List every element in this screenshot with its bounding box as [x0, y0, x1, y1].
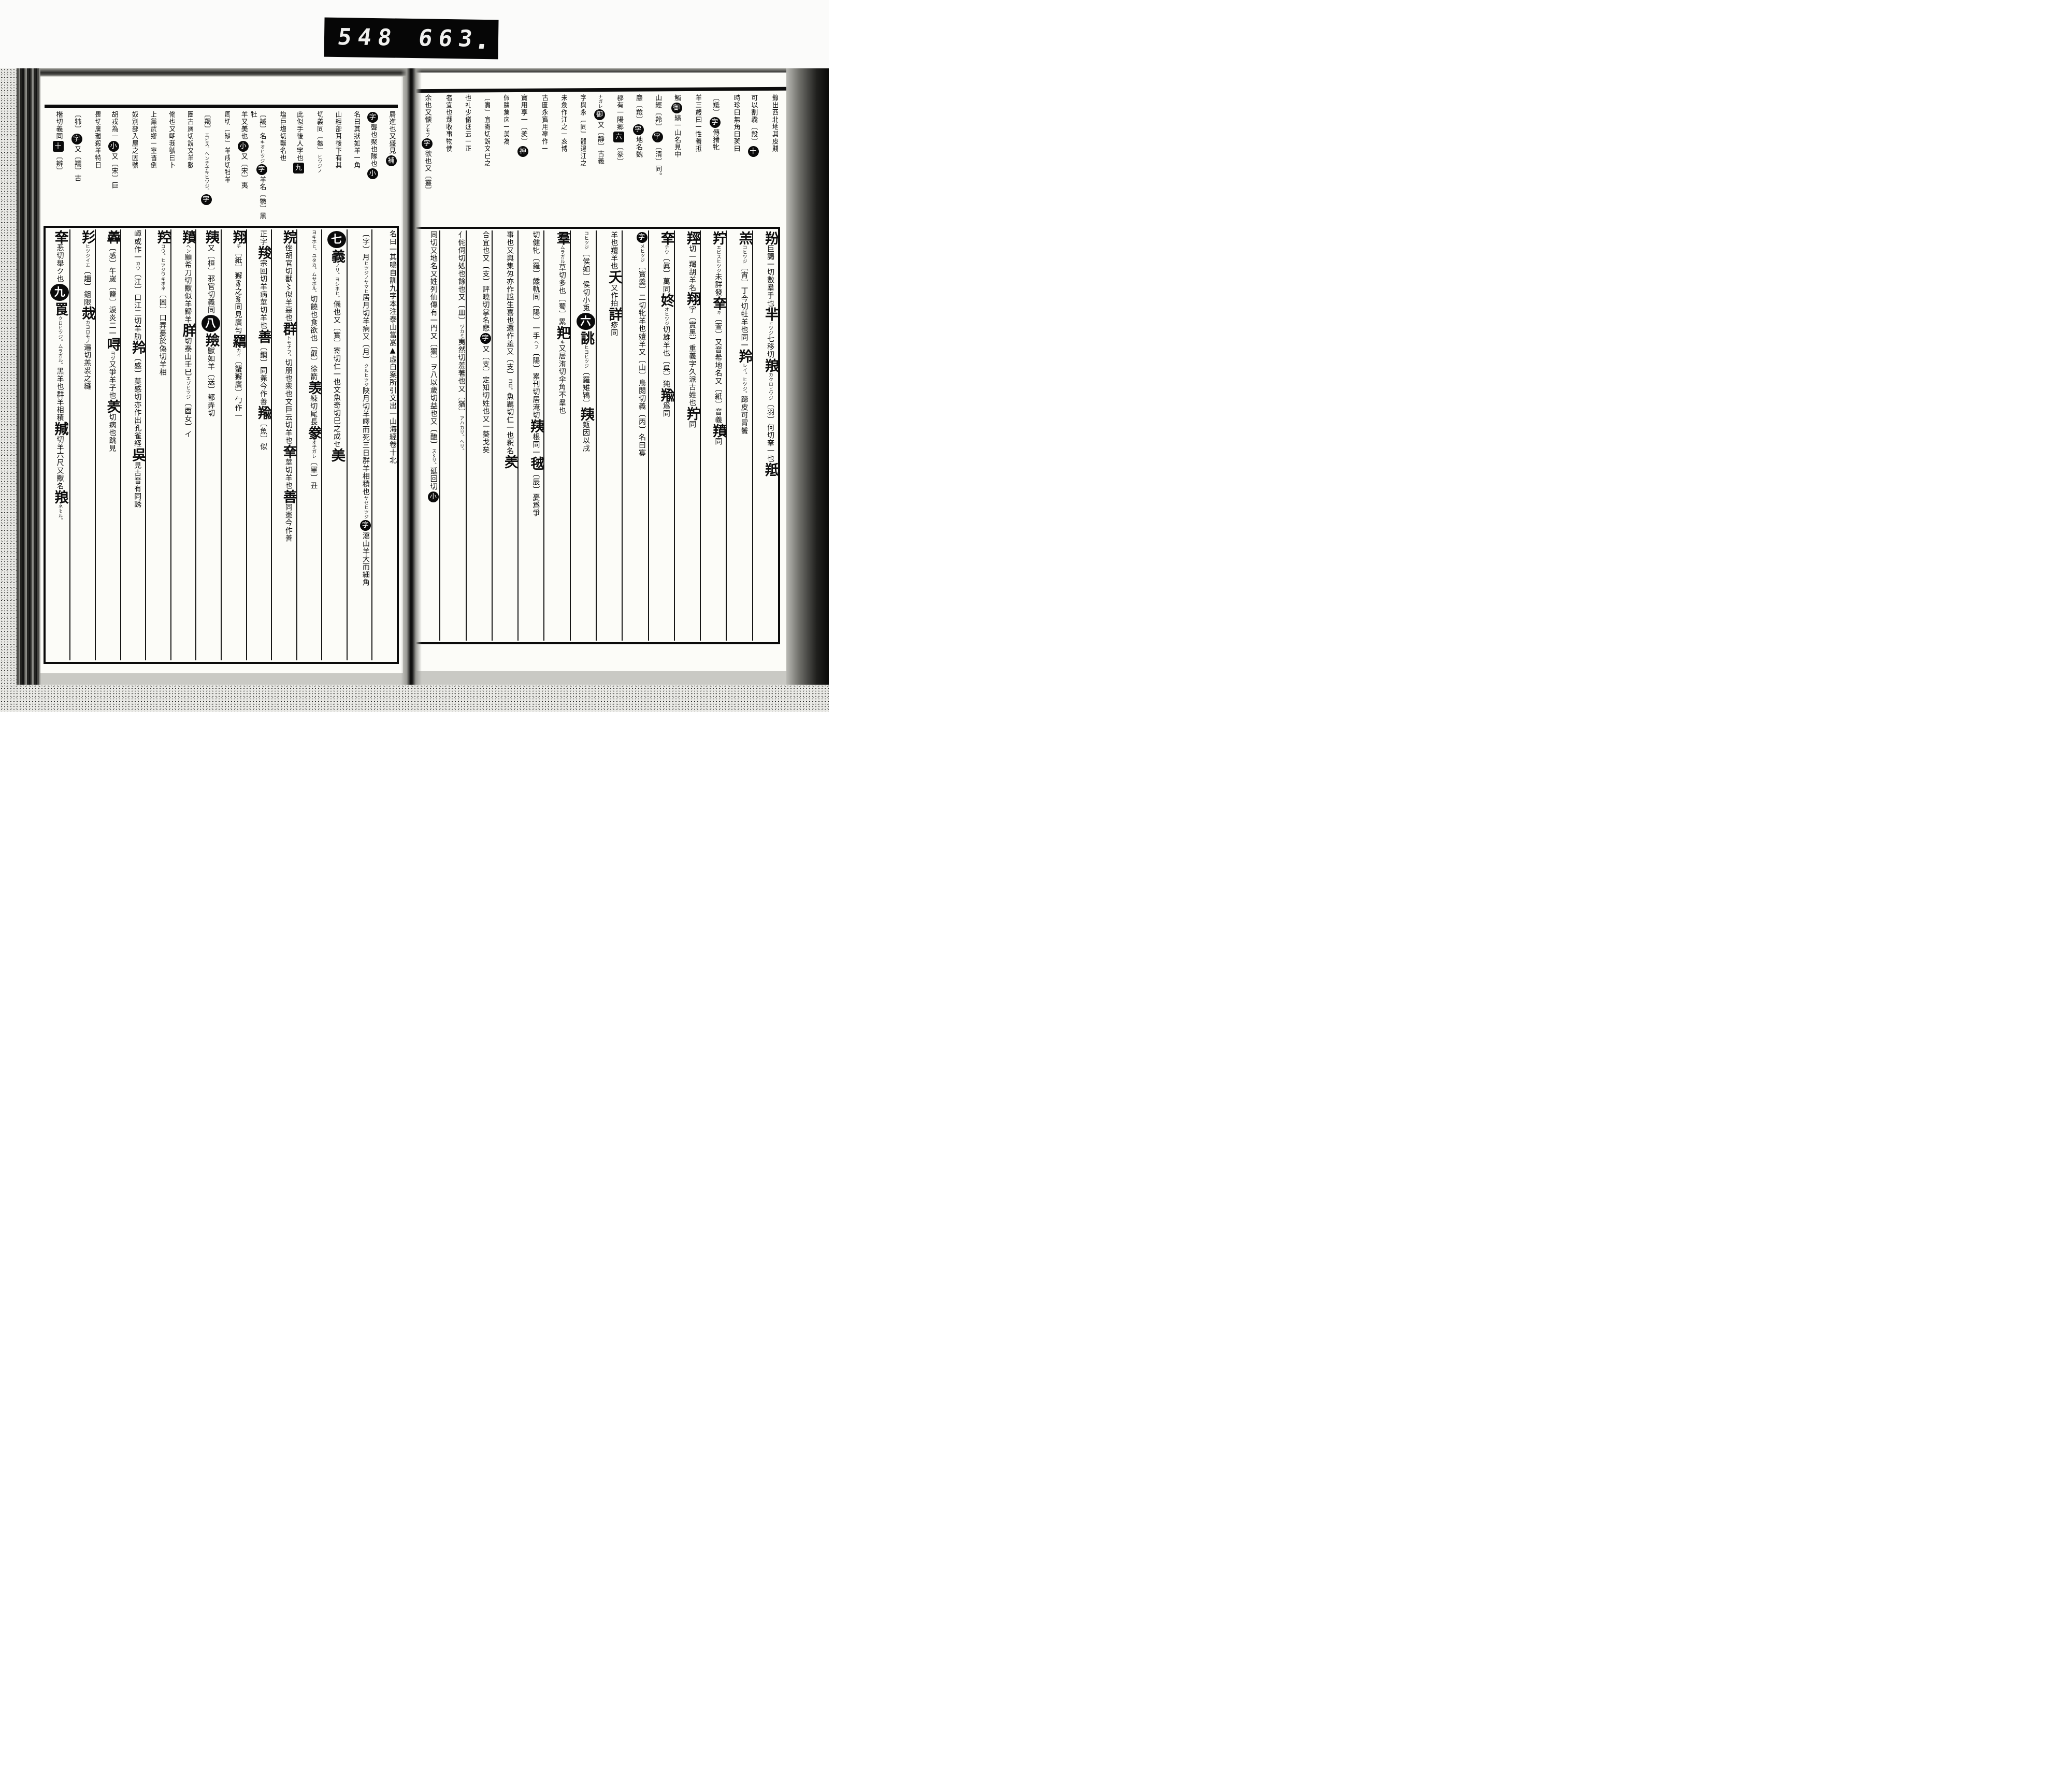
headword-char: 羴 [105, 230, 120, 244]
headword-char: 羡 [306, 381, 321, 395]
kana-reading: チ [236, 244, 241, 249]
section-marker-circle: 字 [480, 333, 491, 344]
gloss-text: 〔蟹獬廣〕勹作一 [234, 357, 242, 420]
section-marker-circle: 小 [108, 141, 119, 152]
gloss-text: 名曰其狀如羊一角 [353, 111, 360, 169]
section-marker-circle: 字 [256, 164, 267, 175]
gloss-text: 文魚奇切巳之成セ [333, 386, 341, 448]
section-marker-circle: 御 [594, 109, 605, 120]
right-page-top-rule [413, 87, 788, 93]
headword-char: 羓 [554, 326, 570, 340]
gloss-text: 羊三歳曰一性善抵 [694, 94, 701, 152]
gloss-text: 宗回切羊病莖切羊也 [259, 259, 267, 329]
gloss-text: 切義同〔皴〕 [315, 111, 323, 154]
section-marker-circle: 神 [517, 146, 528, 157]
gloss-text: 切羊六尺又獸名 [55, 436, 64, 490]
text-column: 〔羝〕字傳猾牝 [702, 94, 721, 223]
text-column: 也礼少儀迬云一正 [453, 94, 471, 223]
gloss-text: 練切尾長 [309, 395, 318, 426]
text-column: 羫コウ。ヒツジワキボネ〔困〕口弄憂於偽切羊相 [145, 229, 170, 660]
right-page-top-block: 錄出西北地其皮賤可以割毳〔羖〕十時珍曰無角曰羐曰〔羝〕字傳猾牝羊三歳曰一性善抵觸… [414, 94, 778, 223]
section-marker-circle: 補 [386, 155, 397, 166]
gloss-text: 同 [714, 438, 722, 445]
kana-reading: ナガレ [597, 94, 602, 108]
text-column: 羦侳胡官切獸〻似羊惡也群トモナフ。切朋也衆也文巨云切羊也羍莖切羊也善同憲今作善 [271, 229, 296, 660]
text-column: 〔羬〕名キオヒツジ字羊名〔犜〕黑牡 [249, 111, 267, 222]
gloss-text: 又爭羊子也 [108, 360, 117, 399]
text-column: 羵ヘン願希刀切獸似羊歸羊羘切泰山壬巳エゾヒツジ〔酉女〕イ [170, 229, 196, 660]
headword-char: 毧 [528, 456, 543, 470]
text-column: 圏古屑切說文羊數 [175, 111, 193, 222]
text-column: 羠又〔桓〕邪官切義同八羷獣如羊〔送〕都弄切 [195, 229, 221, 660]
headword-char: 羭 [658, 388, 674, 402]
text-column: 畏切廣雅殺羊特日 [82, 111, 100, 222]
film-bottom-noise-band [0, 685, 829, 712]
gloss-text: 〔辨〕 [55, 153, 63, 175]
headword-char: 羦 [281, 230, 296, 244]
text-column: 羊也羶羊也夭又作拍詳疹同 [596, 230, 622, 641]
gloss-text: 又〔羺〕古 [73, 146, 81, 182]
stroke-count-marker: 九 [50, 284, 69, 301]
kana-reading: キ [715, 310, 721, 315]
headword-char: 羑 [502, 455, 517, 469]
headword-char: 翔 [684, 292, 700, 306]
headword-char: 群 [281, 322, 296, 336]
kana-reading: エビスヒツジ [715, 245, 721, 273]
text-column: 〔羯〕エビス。ヘンチ子キヒツジ。字 [194, 111, 212, 222]
kana-reading: レイ。ヒツジ。 [742, 363, 747, 396]
text-column: 翔チ〔紙〕獬豸之豸同見廣匀羂カイ〔蟹獬廣〕勹作一 [221, 229, 246, 660]
text-column: 羔コヒツジ〔宵〕丁今切牡羊也同一羚レイ。ヒツジ。蹄皮可冐鬢 [726, 230, 752, 641]
gloss-text: 〔侯如〕侯切小兎 [582, 250, 590, 312]
kana-reading: メヒツジ [639, 244, 644, 263]
kana-reading: オヒツジ [664, 307, 669, 326]
gloss-text: 爲同 [662, 402, 670, 417]
kana-reading: カウ [135, 261, 140, 270]
left-page-main-block: 名曰一其鳴自訓九字本注泰山當嵓▲虛白案所引文出一山海經卷十北〔字〕月ヒツジノヤマ… [44, 226, 399, 664]
open-book: 屑進也又盛見補字聾也聚也隊也小名曰其狀如羊一角山經部耳後下有其切義同〔皴〕ヒツジ… [16, 68, 829, 686]
section-marker-square: 六 [613, 132, 624, 142]
headword-char: 羜 [710, 231, 726, 245]
gloss-text: 願希刀切獸似羊歸羊 [183, 253, 192, 323]
kana-reading: カクロヒツジ [768, 372, 773, 400]
text-column: 羊三歳曰一性善抵 [683, 94, 701, 223]
kana-reading: ヨロ。 [507, 379, 512, 393]
gloss-text: 羊又美也 [240, 111, 248, 140]
headword-char: 羍 [710, 296, 726, 310]
gloss-text: 縞一山名見中 [673, 114, 681, 158]
kana-reading: エゾヒツジ [185, 376, 190, 399]
gloss-text: 地名魏 [635, 136, 642, 158]
section-marker-circle: 字 [360, 520, 371, 531]
gloss-text: 切泰山壬巳 [183, 337, 192, 376]
headword-char: 羍 [658, 231, 674, 245]
text-column: 〔實〕宜寄切說文已之 [472, 94, 490, 223]
headword-char: 羍 [52, 230, 68, 244]
gloss-text: 〔羝〕 [711, 94, 719, 116]
gloss-text: 畏切廣雅殺羊特日 [93, 111, 100, 169]
gloss-text: 未詳發 [714, 273, 722, 296]
text-column: 未矦作江之一亥博 [549, 94, 567, 223]
text-column: 羜エビスヒツジ未詳發羍キ〔萱〕又音希地名又〔紙〕音義羵同 [700, 230, 726, 641]
text-column: 胡戎為一小又〔宋〕巨 [101, 111, 119, 222]
section-marker-circle: 字 [367, 112, 378, 123]
text-column: 名曰一其鳴自訓九字本注泰山當嵓▲虛白案所引文出一山海經卷十北 [371, 229, 397, 660]
text-column: 切健牝〔羅〕餧軌同〔陽〕一手ヘフ〔陽〕累刊切居淹切羠根同一毧〔辰〕憂爲爭 [517, 230, 543, 641]
text-column: 嶂或作一カウ〔江〕口江二切羊肋羚〔感〕莫感切亦作出孔雀経吳見古音有同誘 [120, 229, 146, 660]
headword-char: 羍 [281, 444, 296, 458]
gloss-text: 屑進也又盛見 [387, 111, 395, 154]
text-column: 奴別部入屋之因號 [120, 111, 138, 222]
gloss-text: 周切〔缺〕羊戌切牡羊 [223, 111, 230, 183]
gloss-text: 塩巨塩切獸名也 [279, 111, 286, 162]
gloss-text: 〔羬〕名 [258, 111, 266, 140]
section-marker-circle: 字 [633, 124, 644, 135]
gloss-text: 又居洧切伞角不羣也 [558, 344, 566, 414]
kana-reading: コヒツジ [583, 231, 588, 250]
gloss-text: 根同一 [531, 433, 540, 456]
text-column: 亻侂伺切処也餘也又〔皿〕ヅカミ夷然切羞著也又〔猶〕アハカリ。ヘリ。 [439, 230, 465, 641]
book-right-edge [786, 68, 829, 686]
kana-reading: コウ。ヒツジワキボネ [160, 244, 165, 291]
text-column: 上黨武鄉一室晋倒 [138, 111, 156, 222]
text-column: 切義同〔皴〕ヒツジノ [305, 111, 323, 222]
text-column: 字與永〔同〕體違江之 [568, 94, 586, 223]
gloss-text: 可以割毳〔羖〕 [750, 94, 757, 145]
counter-right-digits: 663 [417, 27, 486, 51]
gloss-text: 遍切羔裘之縫 [83, 343, 91, 390]
kana-reading: クロヒツジ。ムラガル。 [57, 316, 62, 367]
gloss-text: 〔寳羮〕二切牝羊也㜐羊又〔山〕烏閦切義〔丙〕名曰寡 [638, 263, 646, 457]
text-column: 羏ヒツジイエ〔趰〕鉏限烖カヨロモノ遍切羔裘之縫 [69, 229, 95, 660]
text-column: 脩也又朙我號曰卜 [156, 111, 175, 222]
kana-reading: アハカリ。ヘリ。 [459, 416, 464, 453]
headword-char: 翔 [231, 230, 246, 244]
kana-reading: ノリ。ヨシホヒ。 [334, 263, 339, 300]
gloss-text: 麢〔羷〕 [635, 94, 642, 123]
headword-char: 羠 [203, 230, 219, 244]
gloss-text: 正字 [259, 230, 267, 245]
kana-reading: アモフ [425, 123, 430, 137]
headword-char: 羥 [684, 231, 700, 245]
section-marker-circle: 字 [652, 132, 663, 142]
headword-char: 羔 [737, 231, 752, 245]
gloss-text: 〔㸬〕 [73, 111, 81, 133]
gloss-text: 疹同 [610, 321, 618, 337]
gloss-text: 郡有一陽郷 [615, 94, 623, 131]
text-column: 羴〔感〕午嵗〔盬〕淚炎二一㖊ヨヅ又爭羊子也羑切病也跳見 [95, 229, 120, 660]
gloss-text: 居月切羊病又〔月〕 [362, 294, 370, 364]
gloss-text: 奴別部入屋之因號 [131, 111, 138, 169]
text-column: 羣ムラガル草切多也〔蜀〕累羓キ又居洧切伞角不羣也 [543, 230, 569, 641]
kana-reading: テウ [664, 245, 669, 254]
gloss-text: 羊也羶羊也 [610, 231, 618, 270]
counter-decimal-dot [479, 44, 484, 49]
gloss-text: 嶂或作一 [133, 230, 141, 261]
kana-reading: ヒツジノ [316, 154, 322, 173]
frame-counter-display: 548 663 [324, 18, 498, 60]
gloss-text: 合宜也又〔支〕評曉切掌名悲 [481, 231, 490, 332]
gloss-text: 事也又與集匁亦作諡生喜也還作羞又〔支〕 [506, 231, 514, 379]
section-marker-circle: 御 [671, 103, 682, 113]
gloss-text: 錄出西北地其皮賤 [771, 94, 778, 152]
gloss-text: 胡戎為一 [110, 111, 118, 140]
section-marker-circle: 字 [201, 194, 212, 205]
headword-char: 羠 [528, 419, 543, 433]
gloss-text: 山經部耳後下有其 [334, 111, 341, 169]
gloss-text: 脩也又朙我號曰卜 [167, 111, 175, 169]
gloss-text: 〔眞〕萬同 [662, 254, 670, 293]
text-column: 羍テウ〔眞〕萬同㚵オヒツジ切雄羊也〔吳〕㹠羭爲同 [648, 230, 674, 641]
headword-char: 羷 [203, 333, 219, 347]
kana-reading: ヒツジノヤマヒ [363, 261, 368, 294]
gloss-text: 〔辰〕憂爲爭 [531, 470, 540, 517]
headword-char: 烖 [79, 306, 95, 320]
book-gutter [401, 68, 422, 686]
gloss-text: 者宜也㦲收事物使 [444, 94, 452, 152]
gloss-text: 山經〔羚〕 [654, 94, 661, 131]
gloss-text: 字與永〔同〕體違江之 [579, 94, 586, 167]
gloss-text: 圏古屑切說文羊數 [186, 111, 193, 169]
gloss-text: 切一羯胡羊名 [688, 245, 696, 292]
gloss-text: 切雄羊也〔吳〕㹠 [662, 326, 670, 388]
text-column: 郡有一陽郷六〔豢〕 [606, 94, 624, 223]
headword-char: 美 [329, 448, 345, 462]
gloss-text: 〔感〕莫感切亦作出孔雀経 [133, 354, 141, 447]
headword-char: 吳 [129, 447, 145, 461]
headword-char: 羪 [52, 490, 68, 504]
headword-char: 㖊 [105, 337, 120, 351]
text-column: 塩巨塩切獸名也 [268, 111, 286, 222]
text-column: 周切〔缺〕羊戌切牡羊 [212, 111, 230, 222]
kana-reading: ヘン [185, 244, 190, 253]
section-marker-circle: 字 [422, 138, 433, 149]
gloss-text: 魚羈切仁一也釈名 [506, 393, 514, 455]
headword-char: 䍚 [52, 302, 68, 316]
gloss-text: 聾也聚也隊也 [369, 124, 377, 167]
gloss-text: 又〔宋〕夷 [240, 153, 248, 189]
gloss-text: 忢切舉ク也 [55, 244, 64, 283]
stroke-count-marker: 八 [202, 315, 220, 332]
section-marker-circle: 小 [238, 141, 249, 152]
headword-char: 羑 [105, 399, 120, 413]
gloss-text: 又〔靜〕古義 [596, 121, 604, 165]
headword-char: 夭 [606, 270, 622, 284]
text-column: 時珍曰無角曰羐曰 [722, 94, 740, 223]
gloss-text: 〔趰〕鉏限 [83, 267, 91, 306]
kana-reading: ヒツジ [768, 321, 773, 335]
gloss-text: 〔羽〕何切羍一也 [766, 400, 774, 462]
headword-char: 羪 [762, 358, 778, 372]
headword-char: 羣 [554, 231, 570, 245]
headword-char: 羵 [180, 230, 195, 244]
headword-char: 善 [255, 329, 271, 343]
gloss-text: 古圖永寳用亭作一 [540, 94, 548, 152]
text-column: 楷切義同十〔辨〕 [46, 111, 64, 222]
text-column: 錄出西北地其皮賤 [760, 94, 778, 223]
right-page: 錄出西北地其皮賤可以割毳〔羖〕十時珍曰無角曰羐曰〔羝〕字傳猾牝羊三歳曰一性善抵觸… [409, 73, 793, 671]
text-column: 麢〔羷〕字地名魏 [626, 94, 644, 223]
gloss-text: 未矦作江之一亥博 [559, 94, 567, 152]
section-marker-circle: 十 [748, 146, 759, 157]
left-page-top-block: 屑進也又盛見補字聾也聚也隊也小名曰其狀如羊一角山經部耳後下有其切義同〔皴〕ヒツジ… [46, 111, 397, 222]
headword-char: 羫 [155, 230, 170, 244]
gloss-text: 黑羊也群羊相積 [55, 367, 64, 422]
text-column: ヨキホヒ。ユタカ。ムサボル。切饒也食欲也〔叡〕徐箭羡練切尾長豢オ子ガレ〔𦋐〕丑 [296, 229, 322, 660]
kana-reading: コヒツジ [742, 245, 747, 264]
gloss-text: 觸 [673, 94, 681, 102]
headword-char: 羵 [710, 424, 726, 438]
gloss-text: 同切又地名又姓列仙傳有一門又〔獮〕ヲ八以歲切益也又〔醢〕 [429, 231, 438, 449]
headword-char: 羬 [52, 422, 68, 436]
gloss-text: 見古音有同誘 [133, 461, 141, 508]
gloss-text: 〔感〕午嵗〔盬〕淚炎二一 [108, 244, 117, 337]
gloss-text: 〔酉女〕イ [183, 399, 192, 438]
gloss-text: 〔江〕口江二切羊肋 [133, 270, 141, 340]
gloss-text: 佩膓集㐫一美為 [502, 94, 509, 145]
kana-reading: キ [559, 340, 565, 344]
text-column: 〔㸬〕字又〔羺〕古 [64, 111, 82, 222]
headword-char: 詳 [606, 307, 622, 321]
gloss-text: 亻侂伺切処也餘也又〔皿〕 [457, 231, 466, 324]
gloss-text: 又作拍 [610, 284, 618, 307]
left-page: 屑進也又盛見補字聾也聚也隊也小名曰其狀如羊一角山經部耳後下有其切義同〔皴〕ヒツジ… [39, 77, 403, 673]
kana-reading: オ子ガレ [311, 440, 316, 458]
gloss-text: 莖切羊也 [284, 458, 293, 489]
stroke-count-marker: 七 [327, 231, 346, 248]
gloss-text: 〔羅雉鴇〕 [582, 368, 590, 407]
gloss-text: 名曰一其鳴自訓九字本注泰山當嵓 [388, 230, 397, 346]
headword-char: 羋 [762, 307, 778, 321]
headword-char: 羝 [762, 462, 778, 476]
gloss-text: 同 [688, 421, 696, 428]
text-column: 佩膓集㐫一美為 [491, 94, 509, 223]
headword-char: 羜 [684, 407, 700, 421]
headword-char: 誂 [578, 331, 594, 345]
gloss-text: 欲也又〔霻〕 [424, 150, 431, 194]
headword-char: 羠 [578, 407, 594, 421]
kana-reading: クルヒツジ [363, 364, 368, 387]
headword-char: 羒 [762, 231, 778, 245]
kana-reading: ヨヅ [110, 351, 115, 360]
kana-reading: ネ〻ル。 [57, 504, 62, 523]
book-left-edge [16, 68, 40, 686]
text-column: 事也又與集匁亦作諡生喜也還作羞又〔支〕ヨロ。魚羈切仁一也釈名羑 [492, 230, 517, 641]
section-marker-square: 九 [293, 163, 304, 173]
kana-reading: ヅカミ [459, 324, 464, 338]
kana-reading: ヘフ [533, 340, 538, 349]
microfilm-scan: 548 663 屑進也又盛見補字聾也聚也隊也小名曰其狀如羊一角山經部耳後下有其切… [0, 0, 829, 712]
kana-reading: カイ [236, 348, 241, 357]
section-marker-circle: 小 [428, 491, 439, 502]
headword-char: 㚵 [658, 293, 674, 307]
gloss-text: 儀也又〔實〕寄切仁一也 [333, 300, 341, 386]
gloss-text: 巨謁一切數羣手也 [766, 245, 774, 307]
gloss-text: 〔𦋐〕丑 [309, 458, 318, 489]
text-column: 可以割毳〔羖〕十 [741, 94, 759, 223]
gloss-text: 草切多也〔蜀〕累 [558, 264, 566, 326]
kana-reading: ヒツジイエ [84, 244, 90, 267]
gloss-text: 字〔實黑〕重義字久派古姓也 [688, 306, 696, 407]
gloss-text: 切健牝〔羅〕餧軌同〔陽〕一手 [531, 231, 540, 340]
kana-reading: ヨキホヒ。ユタカ。ムサボル。 [311, 230, 316, 295]
text-column: 字聾也聚也隊也小 [360, 111, 378, 222]
gloss-text: 寶用享一〔羑〕 [520, 94, 527, 145]
text-column: 觸御縞一山名見中 [664, 94, 682, 223]
kana-reading: トモナフ。 [286, 336, 291, 359]
gloss-text: 傳猾牝 [711, 129, 719, 151]
film-left-noise-band [0, 68, 17, 686]
gloss-text: 同憲今作善 [284, 503, 293, 542]
headword-char: 羂 [231, 334, 246, 348]
gloss-text: 七移切 [766, 335, 774, 358]
kana-reading: ヒヨヒツジ [583, 345, 588, 368]
section-marker-circle: 字 [637, 232, 647, 243]
gloss-text: 陜月切羊曎而死三日群羊相積也 [362, 387, 370, 496]
gloss-text: 〔紙〕獬豸之豸同見廣匀 [234, 249, 242, 334]
gloss-text: 〔萱〕又音希地名又〔紙〕音義 [714, 315, 722, 424]
kana-reading: ムラガル [559, 245, 565, 264]
kana-reading: ヤセヒツジ [363, 496, 368, 519]
gloss-text: 侳胡官切獸〻似羊惡也 [284, 244, 293, 322]
gloss-text: 〔實〕宜寄切說文已之 [483, 94, 490, 167]
text-column: 此似手後人字也九 [286, 111, 304, 222]
headword-char: 善 [281, 489, 296, 503]
left-page-top-rule [45, 105, 398, 108]
gloss-text: 瀉山羊大而細角 [362, 532, 370, 586]
headword-char: 羏 [79, 230, 95, 244]
section-marker-square: 十 [53, 141, 64, 152]
gloss-text: 切朋也衆也文巨云切羊也 [284, 359, 293, 444]
text-column: 羊又美也小又〔宋〕夷 [231, 111, 249, 222]
gloss-text: 〔陽〕累刊切居淹切 [531, 349, 540, 419]
text-column: 名曰其狀如羊一角 [342, 111, 360, 222]
text-column: 字メヒツジ〔寳羮〕二切牝羊也㜐羊又〔山〕烏閦切義〔丙〕名曰寡 [622, 230, 647, 641]
text-column: 正字羧宗回切羊病莖切羊也善〔鋼〕同羛今作善羭〔魚〕似 [246, 229, 271, 660]
kana-reading: ス〻リ。 [431, 449, 436, 467]
text-column: 山經部耳後下有其 [323, 111, 341, 222]
text-column: ナガレ御又〔靜〕古義 [587, 94, 605, 223]
text-column: コヒツジ〔侯如〕侯切小兎六誂ヒヨヒツジ〔羅雉鴇〕羠㼽因以戌 [570, 230, 596, 641]
text-column: 羒巨謁一切數羣手也羋ヒツジ七移切羪カクロヒツジ〔羽〕何切羍一也羝 [752, 230, 778, 641]
kana-reading: カヨロモノ [84, 320, 90, 343]
headword-char: 羭 [255, 406, 271, 420]
headword-char: 羧 [255, 245, 271, 259]
section-marker-circle: 字 [710, 117, 721, 128]
gloss-text: 切饒也食欲也〔叡〕徐箭 [309, 295, 318, 381]
kana-reading: キオヒツジ [259, 140, 264, 163]
headword-char: 義 [329, 249, 345, 263]
headword-char: 羚 [737, 349, 752, 363]
headword-char: 羚 [129, 340, 145, 354]
gloss-text: 又〔宋〕巨 [110, 153, 118, 189]
gloss-text: 時珍曰無角曰羐曰 [732, 94, 740, 152]
gloss-text: 㼽因以戌 [582, 421, 590, 452]
text-column: 〔字〕月ヒツジノヤマヒ居月切羊病又〔月〕クルヒツジ陜月切羊曎而死三日群羊相積也ヤ… [347, 229, 372, 660]
stroke-count-marker: 六 [577, 313, 595, 330]
gloss-text: 〔宵〕丁今切牡羊也同一 [740, 264, 749, 349]
gloss-text: 切病也跳見 [108, 413, 117, 452]
headword-char: 羘 [180, 323, 195, 337]
gloss-text: 〔字〕月 [362, 230, 370, 261]
gloss-text: 楷切義同 [55, 111, 63, 140]
text-column: 七義ノリ。ヨシホヒ。儀也又〔實〕寄切仁一也文魚奇切巳之成セ美 [321, 229, 347, 660]
gloss-text: 蹄皮可冐鬢 [740, 396, 749, 435]
gloss-text: 〔困〕口弄憂於偽切羊相 [159, 291, 167, 376]
right-page-main-block: 羒巨謁一切數羣手也羋ヒツジ七移切羪カクロヒツジ〔羽〕何切羍一也羝羔コヒツジ〔宵〕… [412, 227, 780, 644]
gloss-text: 又〔桓〕邪官切義同 [207, 244, 215, 314]
gloss-text: 又〔支〕定知切姓也又一葵戈矣 [481, 345, 490, 454]
